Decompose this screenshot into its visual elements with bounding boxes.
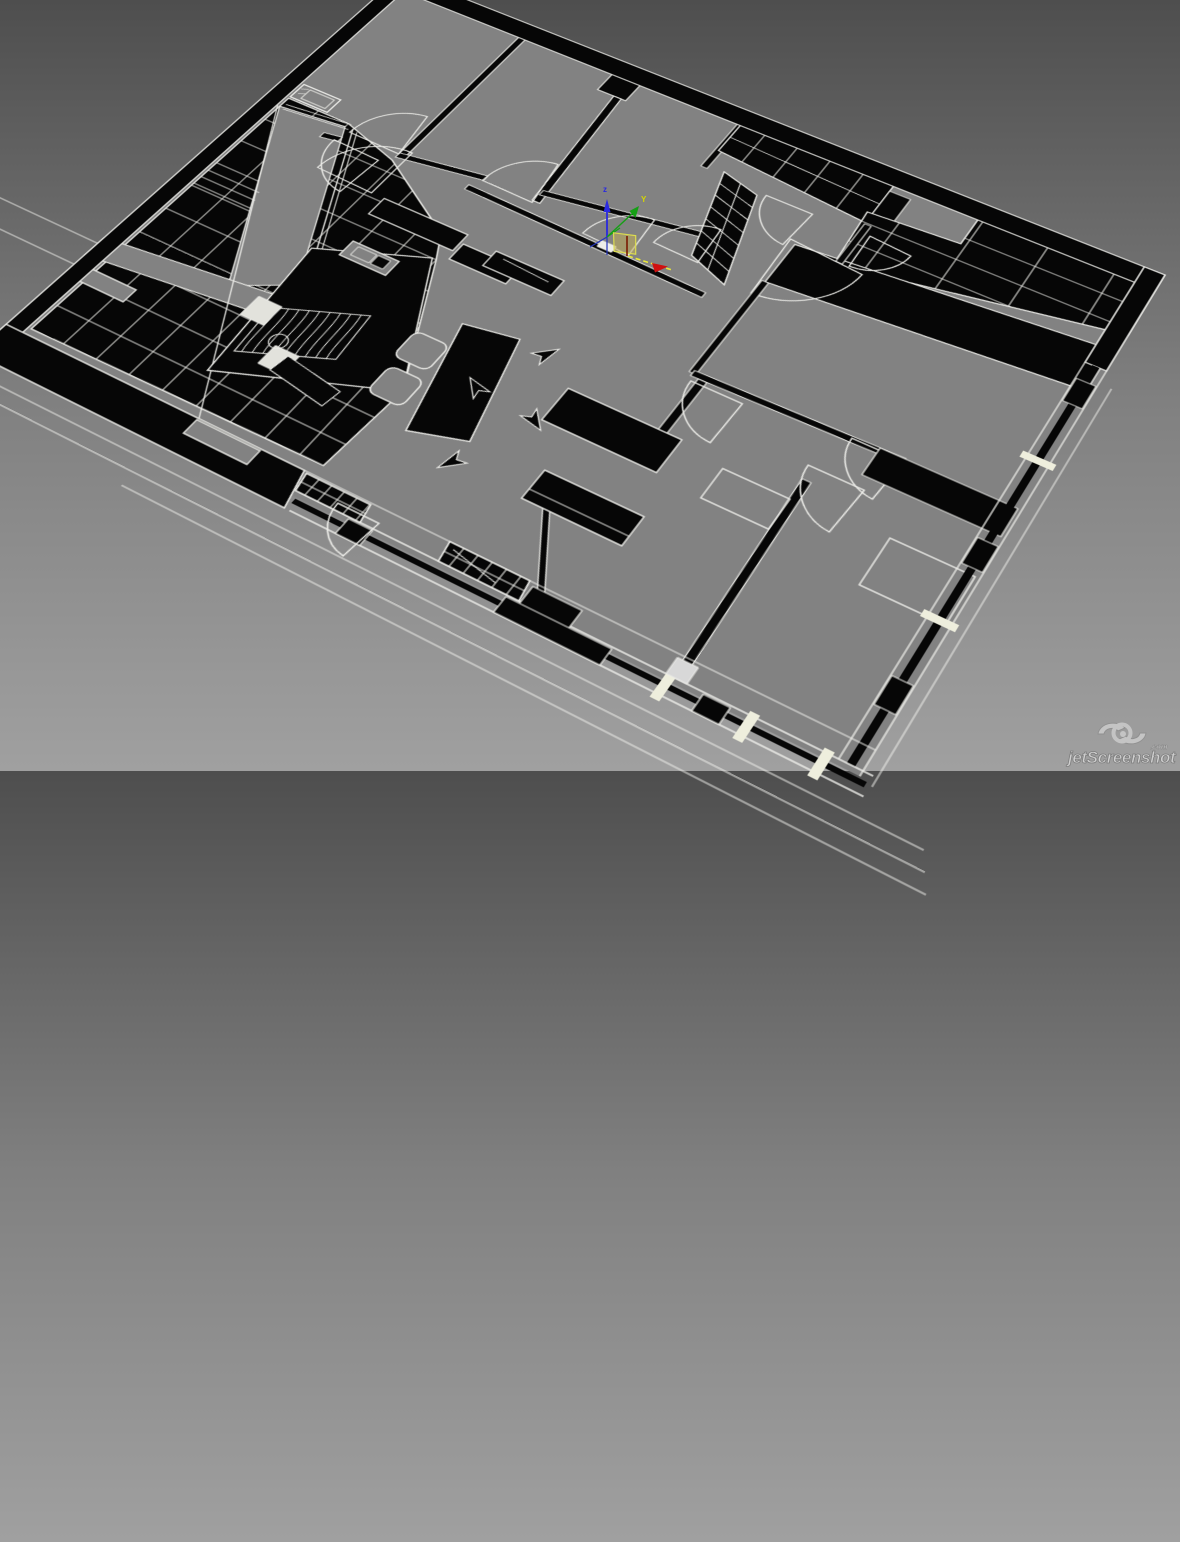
- svg-text:z: z: [603, 185, 607, 194]
- svg-text:Y: Y: [641, 195, 647, 204]
- svg-text:.com: .com: [1150, 742, 1168, 751]
